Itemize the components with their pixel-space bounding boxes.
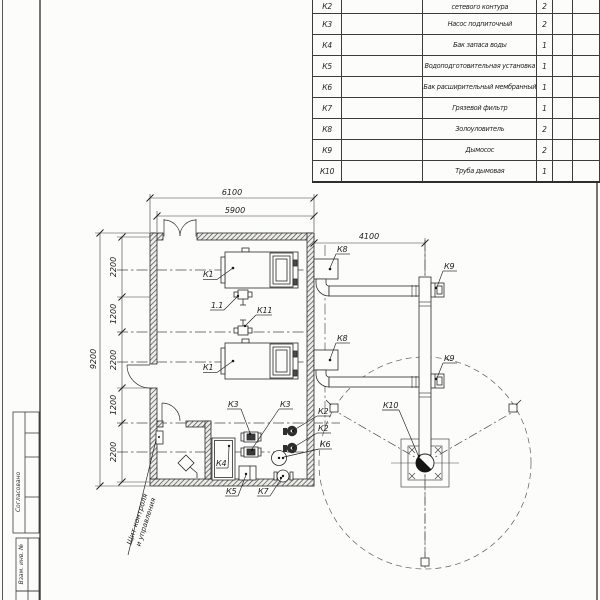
flue-duct-1 — [329, 286, 419, 296]
spec-qty: 2 — [537, 14, 552, 35]
dim-chain-2: 1200 — [110, 304, 118, 324]
spec-name: Бак запаса воды — [423, 35, 537, 56]
spec-qty: 2 — [537, 140, 552, 161]
spec-pos: К5 — [313, 56, 342, 77]
spec-designation-cell — [342, 140, 423, 161]
tag-network-pump-top: К2 — [318, 408, 328, 416]
specification-table: К2 сетевого контура 2 К3 Насос подпиточн… — [312, 0, 600, 183]
tag-boiler-1: К1 — [203, 271, 213, 279]
tag-boiler-2: К1 — [203, 364, 213, 372]
spec-extra1 — [552, 77, 573, 98]
tag-water-treatment: К5 — [226, 488, 236, 496]
spec-name: Дымосос — [423, 140, 537, 161]
spec-row: К7 Грязевой фильтр 1 — [313, 98, 600, 119]
spec-name: Насос подпиточный — [423, 14, 537, 35]
dim-left-overall: 9200 — [90, 349, 98, 369]
spec-row: К9 Дымосос 2 — [313, 140, 600, 161]
spec-pos: К8 — [313, 119, 342, 140]
spec-qty: 1 — [537, 98, 552, 119]
spec-designation-cell — [342, 98, 423, 119]
spec-row: К5 Водоподготовительная установка 1 — [313, 56, 600, 77]
spec-designation-cell — [342, 35, 423, 56]
spec-row: К2 сетевого контура 2 — [313, 0, 600, 14]
flue-system — [314, 259, 444, 455]
spec-name: Грязевой фильтр — [423, 98, 537, 119]
vertical-flue-duct — [419, 277, 431, 455]
flue-elbow-1 — [316, 279, 329, 296]
spec-pos: К9 — [313, 140, 342, 161]
spec-qty: 1 — [537, 77, 552, 98]
spec-pos: К6 — [313, 77, 342, 98]
spec-extra2 — [573, 35, 600, 56]
tag-feed-pump-right: К3 — [280, 401, 290, 409]
tag-feed-pump-left: К3 — [228, 401, 238, 409]
spec-extra1 — [552, 140, 573, 161]
spec-extra1 — [552, 98, 573, 119]
tag-smoke-exhauster-1: К9 — [444, 263, 454, 271]
spec-extra1 — [552, 35, 573, 56]
water-treatment-unit — [239, 466, 256, 480]
tag-dirt-filter: К7 — [258, 488, 268, 496]
tag-smoke-exhauster-2: К9 — [444, 355, 454, 363]
spec-row: К10 Труба дымовая 1 — [313, 161, 600, 183]
dim-chain-5: 2200 — [110, 442, 118, 462]
floor-drain — [178, 455, 197, 478]
spec-pos: К10 — [313, 161, 342, 183]
spec-qty: 1 — [537, 56, 552, 77]
spec-name: Водоподготовительная установка — [423, 56, 537, 77]
spec-designation-cell — [342, 14, 423, 35]
spec-row: К3 Насос подпиточный 2 — [313, 14, 600, 35]
expansion-tank — [272, 451, 287, 466]
spec-row: К6 Бак расширительный мембранный 1 — [313, 77, 600, 98]
network-pump-2 — [283, 443, 297, 453]
dim-flue: 4100 — [359, 233, 379, 241]
spec-extra2 — [573, 56, 600, 77]
spec-qty: 2 — [537, 119, 552, 140]
tag-chimney: К10 — [383, 402, 398, 410]
spec-qty: 2 — [537, 0, 552, 14]
valve-k11 — [234, 320, 252, 335]
stamp-vzam-label: Взам. инв. № — [19, 544, 25, 585]
leader-lines — [128, 254, 457, 555]
tag-storage-tank: К4 — [216, 460, 226, 468]
dim-top-outer: 6100 — [222, 189, 242, 197]
spec-designation-cell — [342, 0, 423, 14]
spec-name: Золоуловитель — [423, 119, 537, 140]
spec-qty: 1 — [537, 161, 552, 183]
spec-row: К4 Бак запаса воды 1 — [313, 35, 600, 56]
drawing-sheet: К2 сетевого контура 2 К3 Насос подпиточн… — [0, 0, 600, 600]
spec-extra2 — [573, 98, 600, 119]
tag-valve-1-1: 1.1 — [211, 302, 223, 310]
spec-extra2 — [573, 140, 600, 161]
ash-collector-2 — [314, 350, 338, 370]
flue-duct-2 — [329, 377, 419, 387]
tag-valve-k11: К11 — [257, 307, 272, 315]
dim-chain-4: 1200 — [110, 395, 118, 415]
spec-extra2 — [573, 119, 600, 140]
spec-extra2 — [573, 77, 600, 98]
tag-ash-collector-2: К8 — [337, 335, 347, 343]
spec-extra1 — [552, 0, 573, 14]
spec-qty: 1 — [537, 35, 552, 56]
spec-row: К8 Золоуловитель 2 — [313, 119, 600, 140]
spec-name: Бак расширительный мембранный — [423, 77, 537, 98]
tag-network-pump-bottom: К2 — [318, 425, 328, 433]
dim-chain-3: 2200 — [110, 350, 118, 370]
spec-extra2 — [573, 14, 600, 35]
spec-extra1 — [552, 119, 573, 140]
dirt-filter — [274, 470, 293, 482]
spec-extra2 — [573, 0, 600, 14]
spec-name: Труба дымовая — [423, 161, 537, 183]
stamp-agreed-label: Согласовано — [16, 472, 22, 512]
spec-designation-cell — [342, 77, 423, 98]
network-pump-1 — [283, 426, 297, 436]
dim-chain-1: 2200 — [110, 257, 118, 277]
spec-designation-cell — [342, 161, 423, 183]
ash-collector-1 — [314, 259, 338, 279]
dim-top-inner: 5900 — [225, 207, 245, 215]
spec-pos: К3 — [313, 14, 342, 35]
spec-extra1 — [552, 56, 573, 77]
doors — [127, 219, 196, 421]
spec-extra1 — [552, 14, 573, 35]
spec-pos: К4 — [313, 35, 342, 56]
tag-expansion-tank: К6 — [320, 441, 330, 449]
spec-name: сетевого контура — [423, 0, 537, 14]
flue-elbow-2 — [316, 370, 329, 387]
boiler-2 — [221, 339, 298, 379]
spec-pos: К2 — [313, 0, 342, 14]
feed-pump-2 — [241, 447, 261, 457]
tag-ash-collector-1: К8 — [337, 246, 347, 254]
spec-pos: К7 — [313, 98, 342, 119]
spec-extra1 — [552, 161, 573, 183]
spec-extra2 — [573, 161, 600, 183]
spec-designation-cell — [342, 119, 423, 140]
spec-designation-cell — [342, 56, 423, 77]
